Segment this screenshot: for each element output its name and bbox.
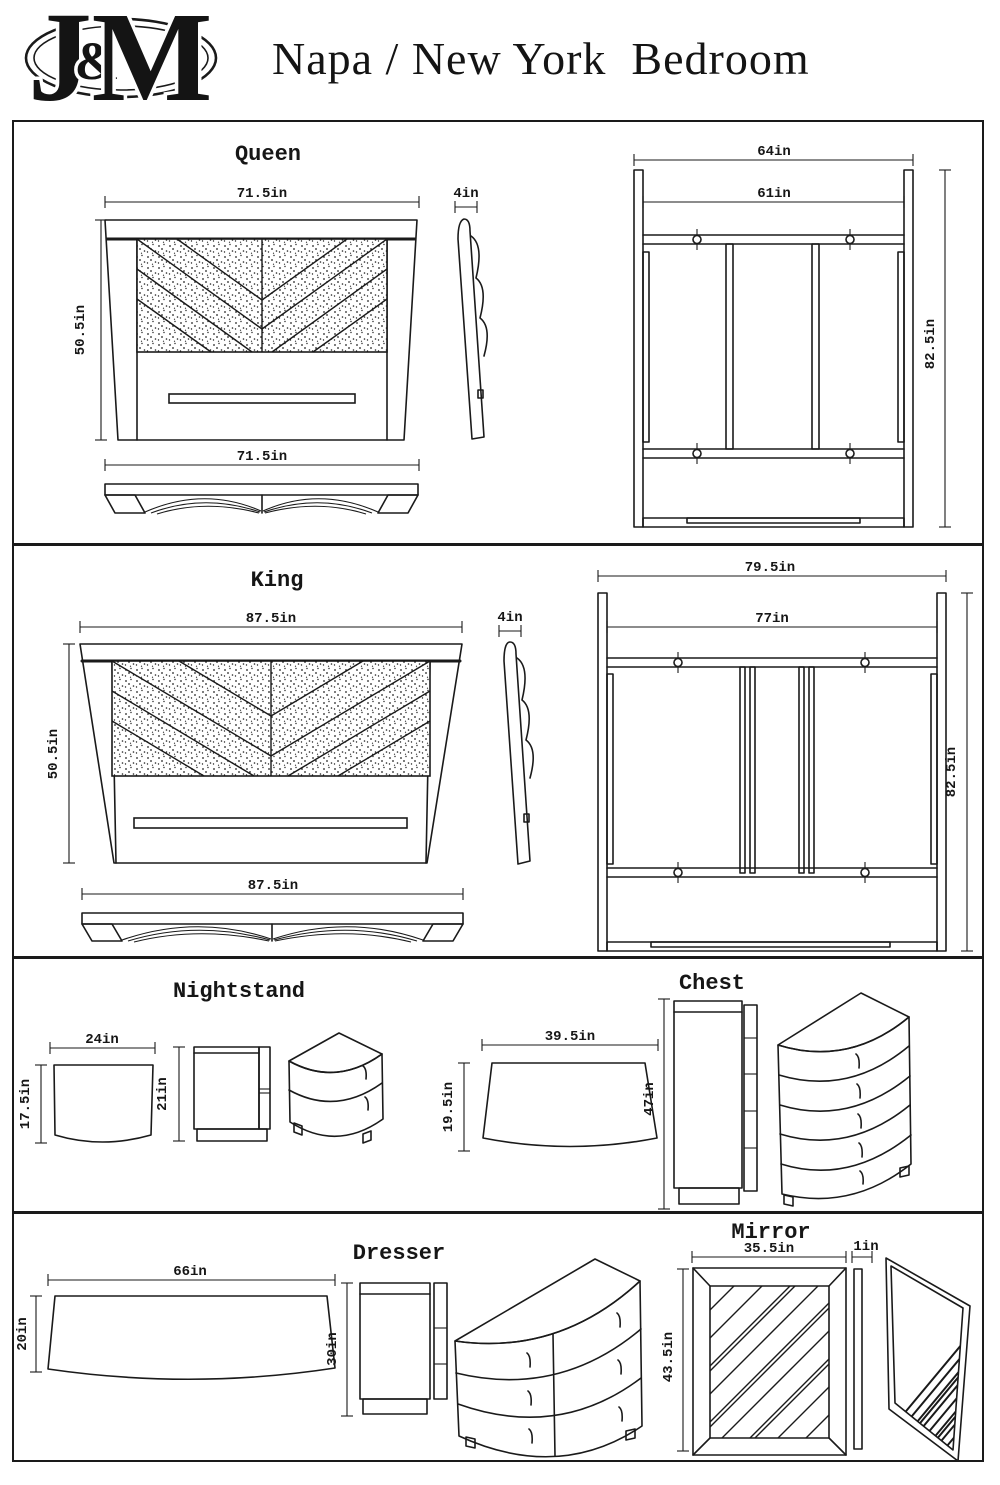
header: J & M Napa / New York Bedroom bbox=[0, 0, 1000, 118]
chest-top-view: 39.5in 19.5in bbox=[441, 1029, 658, 1151]
dresser-top-view: 66in 20in bbox=[15, 1264, 335, 1379]
king-front-width-label: 87.5in bbox=[246, 611, 296, 627]
king-side-depth-label: 4in bbox=[497, 610, 522, 626]
queen-footboard-width-dim: 71.5in bbox=[105, 449, 419, 471]
chest-title: Chest bbox=[679, 971, 745, 996]
nightstand-top-view: 24in 17.5in bbox=[18, 1032, 155, 1143]
mirror-height-dim: 43.5in bbox=[661, 1269, 689, 1451]
queen-footboard-view: 71.5in bbox=[105, 449, 419, 514]
dresser-depth-label: 20in bbox=[15, 1317, 31, 1351]
queen-side-view: 4in bbox=[453, 186, 487, 439]
dresser-height-label: 30in bbox=[325, 1332, 341, 1366]
chest-depth-label: 19.5in bbox=[441, 1082, 457, 1132]
nightstand-depth-label: 17.5in bbox=[18, 1079, 34, 1129]
king-footboard-view: 87.5in bbox=[82, 878, 463, 942]
queen-frame-length-dim: 82.5in bbox=[923, 170, 951, 527]
queen-front-height-dim: 50.5in bbox=[73, 220, 107, 440]
king-title: King bbox=[251, 568, 304, 593]
nightstand-width-label: 24in bbox=[85, 1032, 119, 1048]
king-front-width-dim: 87.5in bbox=[80, 611, 462, 633]
chest-side-view: 47in bbox=[642, 999, 757, 1209]
king-footboard-width-label: 87.5in bbox=[248, 878, 298, 894]
queen-top-view: 64in 61in 82.5in bbox=[634, 144, 951, 527]
section-dresser-mirror: Dresser Mirror 66in 20in 30in bbox=[12, 1212, 984, 1462]
king-frame-outer-width-dim: 79.5in bbox=[598, 560, 946, 582]
chest-height-dim: 47in bbox=[642, 999, 670, 1209]
nightstand-width-dim: 24in bbox=[50, 1032, 155, 1054]
dresser-side-view: 30in bbox=[325, 1283, 447, 1416]
chest-depth-dim: 19.5in bbox=[441, 1063, 470, 1151]
queen-side-depth-dim: 4in bbox=[453, 186, 478, 213]
king-frame-outer-width-label: 79.5in bbox=[745, 560, 795, 576]
mirror-width-dim: 35.5in bbox=[692, 1241, 846, 1263]
chest-iso-view bbox=[778, 993, 911, 1206]
nightstand-height-dim: 21in bbox=[155, 1047, 185, 1141]
king-frame-inner-width-label: 77in bbox=[755, 611, 789, 627]
queen-frame-outer-width-dim: 64in bbox=[634, 144, 913, 166]
section-nightstand-chest: Nightstand Chest 24in 17.5in 21in bbox=[12, 957, 984, 1213]
king-front-view: 87.5in 50.5in bbox=[46, 611, 462, 863]
mirror-width-label: 35.5in bbox=[744, 1241, 794, 1257]
mirror-thickness-label: 1in bbox=[853, 1239, 878, 1255]
queen-frame-outer-width-label: 64in bbox=[757, 144, 791, 160]
dresser-width-label: 66in bbox=[173, 1264, 207, 1280]
queen-title: Queen bbox=[235, 142, 301, 167]
page-title: Napa / New York Bedroom bbox=[272, 33, 810, 84]
king-frame-inner-width-dim: 77in bbox=[607, 611, 937, 633]
queen-footboard-width-label: 71.5in bbox=[237, 449, 287, 465]
queen-front-view: 71.5in 50.5in bbox=[73, 186, 419, 440]
nightstand-height-label: 21in bbox=[155, 1077, 171, 1111]
nightstand-iso-view bbox=[289, 1033, 383, 1143]
queen-front-width-label: 71.5in bbox=[237, 186, 287, 202]
logo-m: M bbox=[92, 0, 213, 118]
king-top-view: 79.5in 77in 82.5in bbox=[598, 560, 973, 951]
king-headboard-slat bbox=[134, 818, 407, 828]
chest-width-dim: 39.5in bbox=[482, 1029, 658, 1051]
mirror-height-label: 43.5in bbox=[661, 1332, 677, 1382]
dresser-iso-view bbox=[455, 1259, 642, 1457]
chest-height-label: 47in bbox=[642, 1082, 658, 1116]
mirror-iso-view bbox=[852, 1258, 982, 1460]
spec-sheet-page: J & M Napa / New York Bedroom Queen 71.5… bbox=[0, 0, 1000, 1485]
king-side-view: 4in bbox=[497, 610, 533, 864]
jm-logo: J & M bbox=[26, 0, 216, 118]
queen-frame-inner-width-label: 61in bbox=[757, 186, 791, 202]
king-side-depth-dim: 4in bbox=[497, 610, 522, 637]
section-king: King 87.5in 50.5in bbox=[12, 544, 984, 958]
dresser-height-dim: 30in bbox=[325, 1283, 353, 1416]
dresser-title: Dresser bbox=[353, 1241, 445, 1266]
queen-frame-inner-width-dim: 61in bbox=[643, 186, 904, 208]
chest-width-label: 39.5in bbox=[545, 1029, 595, 1045]
king-frame-length-label: 82.5in bbox=[944, 747, 960, 797]
king-front-height-dim: 50.5in bbox=[46, 644, 75, 863]
queen-headboard-slat bbox=[169, 394, 355, 403]
dresser-depth-dim: 20in bbox=[15, 1296, 42, 1372]
queen-front-height-label: 50.5in bbox=[73, 305, 89, 355]
king-front-height-label: 50.5in bbox=[46, 729, 62, 779]
nightstand-title: Nightstand bbox=[173, 979, 305, 1004]
section-queen: Queen 71.5in 50.5in bbox=[12, 120, 984, 545]
nightstand-side-view: 21in bbox=[155, 1047, 270, 1141]
king-frame-length-dim: 82.5in bbox=[944, 593, 973, 951]
queen-front-width-dim: 71.5in bbox=[105, 186, 419, 208]
nightstand-depth-dim: 17.5in bbox=[18, 1065, 47, 1143]
dresser-width-dim: 66in bbox=[48, 1264, 335, 1286]
king-footboard-width-dim: 87.5in bbox=[82, 878, 463, 900]
mirror-thickness-dim: 1in bbox=[852, 1239, 879, 1263]
mirror-side-bar bbox=[854, 1269, 862, 1449]
mirror-front-view: 35.5in 1in 43.5in bbox=[661, 1239, 879, 1455]
queen-side-depth-label: 4in bbox=[453, 186, 478, 202]
queen-frame-length-label: 82.5in bbox=[923, 319, 939, 369]
